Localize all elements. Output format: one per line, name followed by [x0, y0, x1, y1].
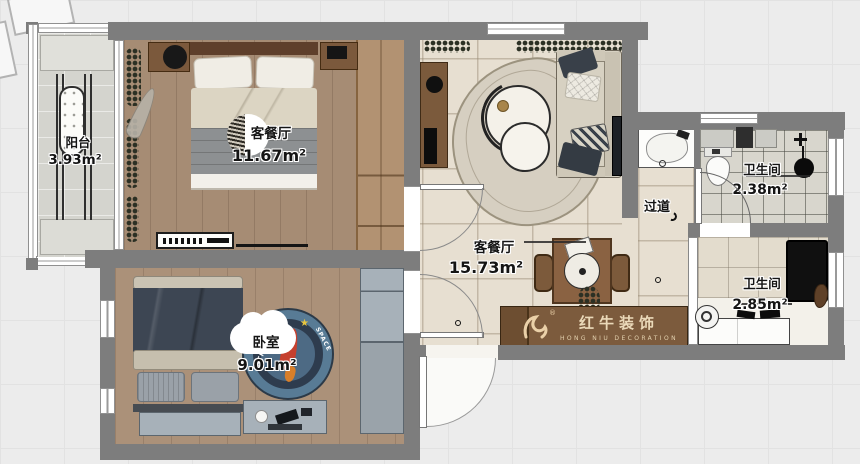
- watermark-logo: ® 红牛装饰 HONG NIU DECORATION: [522, 310, 686, 344]
- balcony-corner-wall-2: [26, 258, 38, 270]
- storage-bench: [139, 412, 241, 436]
- bathroom1-window: [828, 138, 844, 196]
- bathroom1-cabinet-2: [755, 129, 777, 148]
- bathroom2-door-leaf: [688, 237, 698, 345]
- outer-wall-left: [100, 268, 115, 454]
- wardrobe: [356, 40, 404, 250]
- table-lamp: [163, 45, 187, 69]
- dining-chair-left: [534, 254, 554, 292]
- bed-pillow: [255, 56, 314, 90]
- dining-chair-right: [610, 254, 630, 292]
- plant-garland: [424, 40, 470, 53]
- balcony-name-label: 阳台: [65, 132, 90, 151]
- master-bedroom-area-label: 11.67m²: [232, 146, 306, 165]
- door-stop-dot: [455, 320, 461, 326]
- bathroom-top-wall-window: [700, 113, 758, 124]
- wall-shelf-line: [236, 244, 308, 247]
- master-door-opening: [404, 186, 420, 252]
- entry-door-leaf: [419, 356, 427, 428]
- hanging-plant: [126, 48, 141, 106]
- living-name-label: 客餐厅: [474, 236, 515, 256]
- interior-wall-horizontal: [85, 250, 420, 268]
- bull-logo-icon: ®: [522, 313, 552, 341]
- bathroom2-area-label: 2.85m²: [732, 297, 787, 313]
- door-stop-dot: [655, 277, 661, 283]
- toilet-button: [712, 149, 720, 154]
- balcony-cabinet-top: [40, 35, 114, 71]
- kids-bedroom-window: [100, 300, 115, 338]
- kids-bed-pillow: [191, 372, 239, 402]
- tablet: [327, 46, 347, 59]
- side-unit-black: [612, 116, 622, 176]
- master-bedroom-name-label: 客餐厅: [251, 122, 292, 142]
- bed-sheet-edge: [191, 174, 317, 190]
- desk-lamp-ball: [255, 410, 268, 423]
- bathroom1-name-label: 卫生间: [743, 159, 781, 178]
- coffee-table-small: [500, 122, 550, 172]
- bathroom1-dark-box: [736, 127, 753, 148]
- kids-bed-frame: [133, 404, 243, 412]
- shower-sprinkler-icon-bar: [794, 138, 807, 141]
- label-leader-line: [524, 241, 586, 243]
- desk-pad: [268, 424, 302, 430]
- washing-machine: [695, 305, 719, 329]
- drain: [659, 160, 666, 167]
- hallway-name-label: 过道: [644, 196, 670, 215]
- registered-mark: ®: [549, 309, 556, 317]
- bed-headboard: [190, 42, 318, 55]
- bed-pillow: [193, 56, 253, 91]
- hanging-plant: [126, 196, 139, 242]
- kids-bed-pillow: [137, 372, 185, 402]
- dresser-vent: [163, 238, 203, 244]
- kids-bed-blanket: [133, 288, 243, 352]
- bathroom1-cabinet: [700, 129, 734, 148]
- outer-wall-top: [108, 22, 648, 40]
- sofa-pillow-quilted: [564, 72, 601, 102]
- master-balcony-window: [114, 40, 124, 250]
- brand-subtitle: HONG NIU DECORATION: [560, 335, 678, 342]
- phone: [301, 408, 312, 416]
- washbasin: [638, 128, 698, 168]
- balcony-left-window: [28, 24, 38, 264]
- brass-decor: [497, 100, 509, 112]
- dresser-slot: [207, 238, 229, 243]
- entry-door-swing: [427, 358, 496, 427]
- bathroom1-door-opening: [700, 223, 750, 237]
- kids-bed-beige-band: [133, 350, 243, 370]
- outer-wall-bottom-left: [100, 444, 420, 460]
- kids-bedroom-name-label: 卧室: [253, 331, 280, 351]
- bathroom2-name-label: 卫生间: [743, 273, 781, 292]
- kids-bedroom-window-2: [100, 388, 115, 414]
- floorplan-canvas: 阳台 3.93m² 客餐厅 11.67m² ★: [0, 0, 860, 464]
- living-top-window: [487, 23, 565, 35]
- logo-text-block: 红牛装饰 HONG NIU DECORATION: [560, 312, 678, 342]
- tv: [424, 128, 437, 164]
- drying-rack-pole: [56, 74, 58, 220]
- washing-machine-drum: [701, 311, 712, 322]
- kids-bedroom-area-label: 9.01m²: [237, 356, 296, 374]
- brand-name: 红牛装饰: [579, 312, 659, 333]
- living-area-label: 15.73m²: [449, 258, 523, 277]
- plate-center-dot: [579, 268, 586, 275]
- kids-cabinet: [360, 268, 404, 434]
- balcony-top-window: [38, 23, 118, 33]
- speaker: [426, 76, 443, 93]
- balcony-area-label: 3.93m²: [48, 152, 101, 168]
- star-icon: ★: [300, 318, 309, 329]
- kids-door-opening: [404, 270, 420, 334]
- bathroom2-window: [828, 252, 844, 308]
